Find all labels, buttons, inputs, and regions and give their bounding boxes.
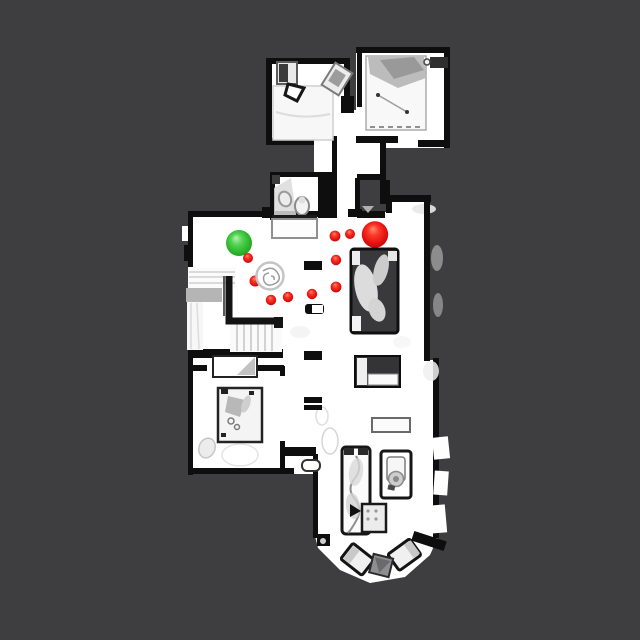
- media-console-shelf: [368, 374, 398, 385]
- corner-cabinet: [430, 57, 448, 68]
- hall-post: [304, 351, 322, 360]
- wall: [356, 136, 398, 143]
- hall-post: [304, 261, 322, 270]
- floor-smudge: [290, 326, 310, 338]
- waypoint-p3[interactable]: [283, 292, 293, 302]
- floor-smudge: [393, 336, 411, 348]
- waypoint-start[interactable]: [226, 230, 252, 256]
- window-sill-right: [432, 436, 450, 460]
- wall: [355, 178, 360, 210]
- daybed-pillow: [388, 251, 397, 261]
- ottoman-dot: [366, 517, 369, 520]
- scan-viewer-viewport[interactable]: [0, 0, 640, 640]
- coffee-table-bowl-center: [393, 476, 399, 482]
- scene-svg[interactable]: [0, 0, 640, 640]
- floor-hall-left-link: [314, 140, 334, 174]
- wall: [184, 245, 191, 261]
- ottoman: [362, 504, 386, 532]
- wall: [190, 211, 266, 217]
- window-sill-right: [430, 504, 447, 533]
- lamp: [424, 59, 430, 65]
- wall: [282, 447, 316, 456]
- wall: [357, 174, 383, 180]
- sofa-arm: [358, 448, 368, 455]
- window-smudge: [433, 293, 443, 317]
- waypoint-p1[interactable]: [243, 253, 253, 263]
- ottoman-dot: [374, 517, 377, 520]
- bed-right-dot: [405, 110, 409, 114]
- dining-table-corner: [249, 391, 254, 395]
- wall: [190, 365, 207, 371]
- wall: [280, 441, 285, 474]
- daybed-pillow: [352, 251, 360, 265]
- toilet-tank: [299, 197, 306, 204]
- bed-right-dot: [376, 93, 380, 97]
- window-smudge: [423, 361, 439, 381]
- daybed-pillow: [352, 316, 361, 331]
- wall: [341, 96, 354, 113]
- wall-bolt: [320, 538, 326, 544]
- waypoint-p4[interactable]: [307, 289, 317, 299]
- dining-table-corner: [221, 389, 228, 394]
- waypoint-p7[interactable]: [330, 231, 341, 242]
- waypoint-p5[interactable]: [331, 282, 342, 293]
- ottoman-dot: [374, 509, 377, 512]
- sofa-arm: [344, 448, 354, 455]
- waypoint-p2[interactable]: [266, 295, 276, 305]
- wall: [418, 140, 450, 147]
- window-sill-right: [433, 471, 449, 496]
- hall-post-cap: [312, 305, 323, 313]
- wall: [356, 47, 450, 53]
- wall: [332, 136, 337, 218]
- hall-post: [304, 405, 322, 410]
- stairs-landing: [186, 288, 222, 302]
- wall: [188, 468, 294, 474]
- closet: [272, 219, 317, 238]
- wall: [357, 47, 362, 107]
- wall: [424, 199, 430, 361]
- wardrobe-dark: [279, 64, 288, 82]
- wall: [380, 136, 386, 180]
- window-smudge: [431, 245, 443, 271]
- media-console-shelf: [357, 358, 367, 385]
- dining-table-corner: [221, 433, 226, 437]
- ottoman-dot: [366, 509, 369, 512]
- waypoint-p8[interactable]: [345, 229, 355, 239]
- waypoint-goal[interactable]: [362, 221, 388, 247]
- wall-shelf: [372, 418, 410, 432]
- wall: [357, 211, 385, 218]
- bathroom-corner: [272, 175, 280, 184]
- hall-post: [304, 397, 322, 403]
- hall-stool: [302, 460, 320, 471]
- wall: [266, 58, 272, 144]
- waypoint-p6[interactable]: [331, 255, 341, 265]
- stairs-left-flight: [187, 302, 203, 350]
